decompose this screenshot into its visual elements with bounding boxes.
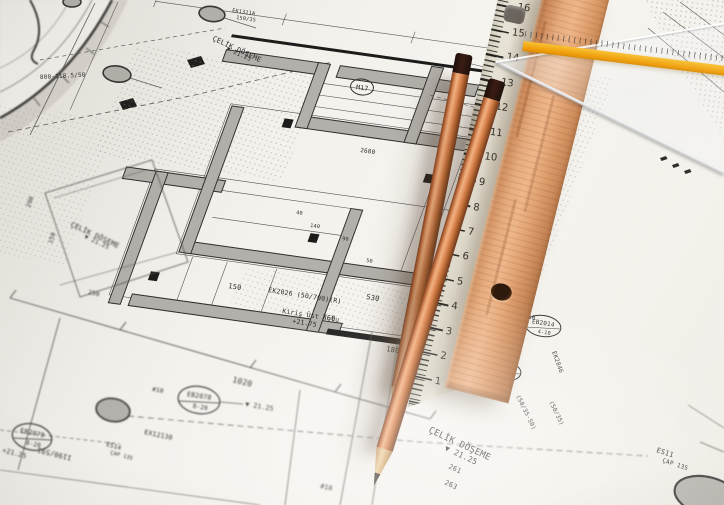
tag-eb2078-name: EB2078 <box>186 390 212 402</box>
label-1190-591: 1190/591 <box>36 446 72 462</box>
label-arc-note: 800-118.5/50 <box>40 72 86 81</box>
label-elev-2125-c: ▼ 21.25 <box>245 400 275 413</box>
dim-1020: 1020 <box>232 375 254 389</box>
dim-250: 250 <box>88 289 101 298</box>
dim-150: 150 <box>228 282 242 292</box>
dim-90: 90 <box>342 236 349 243</box>
label-50-35-50: (50/35-50) <box>514 394 537 431</box>
label-ek2846: EK2846 <box>550 350 564 374</box>
label-rebar10-c: #10 <box>320 482 334 492</box>
tag-eb2078-size: 8-20 <box>192 403 208 412</box>
dim-140: 140 <box>310 223 321 230</box>
dim-40: 40 <box>296 210 303 217</box>
label-celik-left: ÇELİK DÖŞEME <box>69 220 121 251</box>
blueprint-photo: EB2078 8-20 EB2079 8-20 EB2014 4-10 EB20… <box>0 0 724 505</box>
tag-eb2079-name: EB2079 <box>20 427 46 440</box>
label-es11-cap: ÇAP 135 <box>661 457 689 472</box>
label-ex12130: EX12130 <box>144 428 174 442</box>
dim-261: 261 <box>447 463 462 476</box>
dim-263: 263 <box>443 479 458 492</box>
label-50-35: (50/35) <box>547 400 565 427</box>
tag-m17: M17 <box>356 83 369 93</box>
pencil-lead-tip <box>369 472 381 487</box>
dim-2680: 2680 <box>360 147 376 156</box>
label-rebar10-a: #10 <box>152 386 165 395</box>
dim-50: 50 <box>366 258 373 265</box>
label-es14-cap: ÇAP 135 <box>109 450 133 462</box>
